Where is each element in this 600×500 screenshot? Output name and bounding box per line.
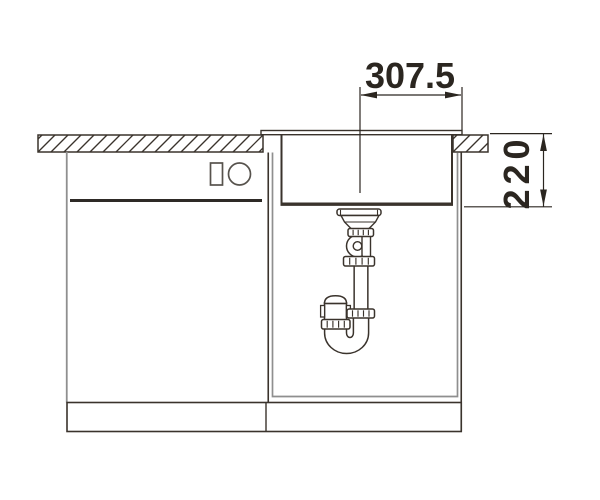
nut-strainer [348,229,374,237]
drain-trap-assembly [321,209,381,354]
sink-installation-drawing: 307.5 220 [0,0,600,500]
sink-basin [261,131,462,205]
connection-loop-inner [353,242,362,251]
strainer-flange [337,209,381,216]
depth-dimension-label: 220 [496,134,537,209]
plinth-base [67,403,461,432]
countertop [38,135,488,152]
trap-cap-dome [325,296,347,304]
left-appliance-cabinet [67,152,262,403]
connector-pipe-body [363,235,370,258]
countertop-right-section [453,135,488,152]
appliance-control-knob [229,163,251,185]
appliance-display-panel [211,163,223,185]
arrow-up-icon [540,134,547,151]
arrow-down-icon [540,190,547,207]
nut-tailpipe-top [344,257,375,267]
technical-drawing-canvas: 307.5 220 [0,0,600,500]
plinth-outline [67,403,461,432]
dimension-width: 307.5 [360,55,462,193]
width-dimension-label: 307.5 [365,55,455,96]
nut-tailpipe-lower [347,309,375,318]
nut-trap-riser [322,320,351,330]
sink-rim [261,131,462,135]
trap-left-tab [321,306,325,318]
